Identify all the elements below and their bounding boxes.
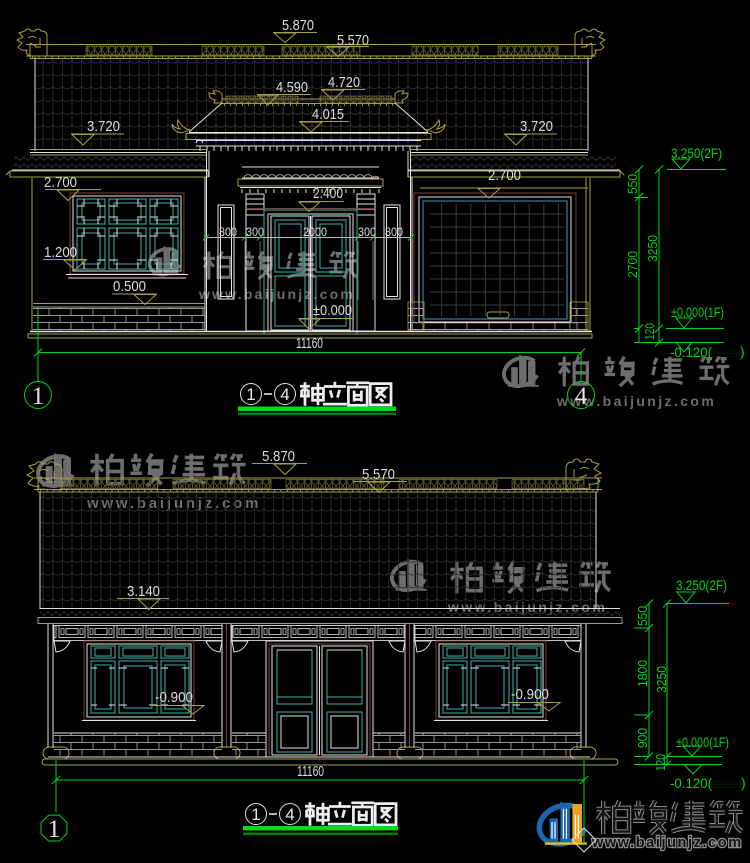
svg-text:1800: 1800 [635,660,650,687]
svg-text:2.400: 2.400 [313,185,343,202]
svg-text:3.250(2F): 3.250(2F) [676,577,727,593]
svg-text:1: 1 [251,805,260,824]
svg-text:4.015: 4.015 [312,106,344,123]
svg-text:4: 4 [575,383,588,410]
svg-text:900: 900 [635,728,650,748]
svg-text:120: 120 [653,754,668,771]
svg-text:4: 4 [285,805,294,824]
svg-text:3250: 3250 [654,666,669,693]
svg-text:4.720: 4.720 [328,74,360,91]
svg-text:11160: 11160 [296,336,323,352]
svg-text:-0.900: -0.900 [155,689,193,706]
svg-text:3250: 3250 [645,235,660,262]
svg-text:1: 1 [246,385,255,404]
svg-text:2.700: 2.700 [488,167,521,184]
svg-text:-0.120(: -0.120( [670,775,712,791]
svg-text:3.720: 3.720 [520,118,553,135]
svg-text:2000: 2000 [303,225,327,239]
svg-text:1: 1 [48,816,61,843]
svg-text:550: 550 [625,174,640,194]
svg-text:2.700: 2.700 [44,174,77,191]
svg-text:): ) [741,775,746,791]
svg-text:): ) [740,344,745,360]
svg-text:5.570: 5.570 [362,466,395,483]
svg-text:550: 550 [635,606,650,626]
svg-text:3.140: 3.140 [127,583,160,600]
svg-text:www.baijunjz.com: www.baijunjz.com [198,286,355,302]
svg-text:4: 4 [280,385,289,404]
svg-text:3.720: 3.720 [87,118,120,135]
svg-text:11160: 11160 [297,764,324,780]
svg-text:±0.000: ±0.000 [313,302,352,319]
svg-text:-0.900: -0.900 [511,686,549,703]
svg-text:1: 1 [32,383,45,410]
svg-text:1.200: 1.200 [44,244,77,261]
svg-text:-0.120(: -0.120( [670,344,712,360]
svg-text:800: 800 [219,225,237,239]
svg-text:800: 800 [385,225,403,239]
svg-text:2700: 2700 [625,251,640,278]
svg-text:5.870: 5.870 [282,17,314,34]
svg-text:120: 120 [642,323,657,340]
svg-text:5.870: 5.870 [262,448,295,465]
svg-text:0.500: 0.500 [113,278,146,295]
svg-text:www.baijunjz.com: www.baijunjz.com [591,835,743,851]
svg-text:300: 300 [246,225,264,239]
svg-text:4.590: 4.590 [276,79,308,96]
svg-text:300: 300 [358,225,376,239]
